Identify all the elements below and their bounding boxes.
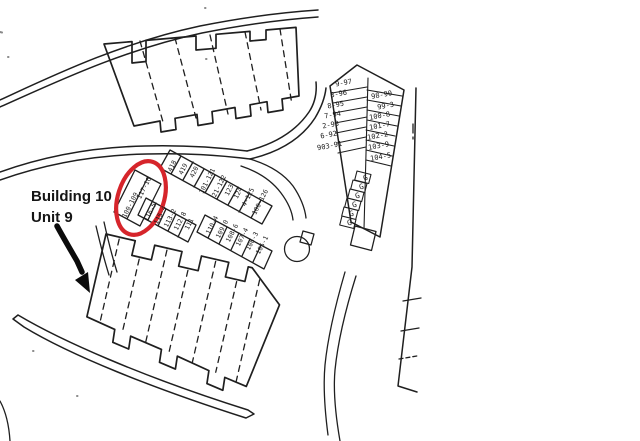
parking-space-label: 100-109 [120, 191, 140, 219]
top-road [0, 10, 318, 107]
parking-space-label: 7-94 [324, 110, 342, 121]
right-road-edge [398, 88, 417, 392]
upper-building-outline [104, 27, 299, 132]
site-plan-scan: Building 10 Unit 9 117-16 100-109 418 41… [0, 0, 640, 441]
annotation-unit-label: Unit 9 [31, 209, 73, 226]
parking-space-label: 418 [166, 159, 178, 173]
parking-space-label: 419 [177, 162, 189, 176]
right-block-end-box [351, 226, 377, 251]
annotation-building-label: Building 10 [31, 188, 112, 205]
upper-building [104, 27, 299, 132]
parking-space-label: 101-7 [369, 120, 391, 132]
parking-space-label: 104-5 [370, 151, 392, 163]
parking-space-label: 8-95 [327, 100, 345, 111]
annotation-arrowhead [75, 272, 90, 293]
parking-ticks-row [401, 298, 421, 331]
parking-space-label: 3-96 [330, 89, 348, 100]
parking-space-label: 903-91 [317, 140, 343, 152]
sidewalk-strip [13, 315, 254, 418]
access-lane-upper [247, 82, 326, 159]
cul-de-sac [285, 237, 310, 262]
parking-space-label: 9-97 [335, 78, 353, 89]
right-parking-block-divider [364, 78, 368, 229]
parking-space-label: 99-3 [377, 101, 395, 112]
annotation-arrow [57, 226, 82, 272]
curb-arc-bottom-left [0, 401, 10, 441]
site-plan-map: Building 10 Unit 9 117-16 100-109 418 41… [0, 0, 640, 441]
parking-space-label: 6-92 [320, 130, 338, 141]
lower-building-unit-dividers [94, 239, 261, 381]
parking-space-label: 103-9 [368, 140, 390, 152]
lane-curves-lower-right [324, 272, 356, 441]
